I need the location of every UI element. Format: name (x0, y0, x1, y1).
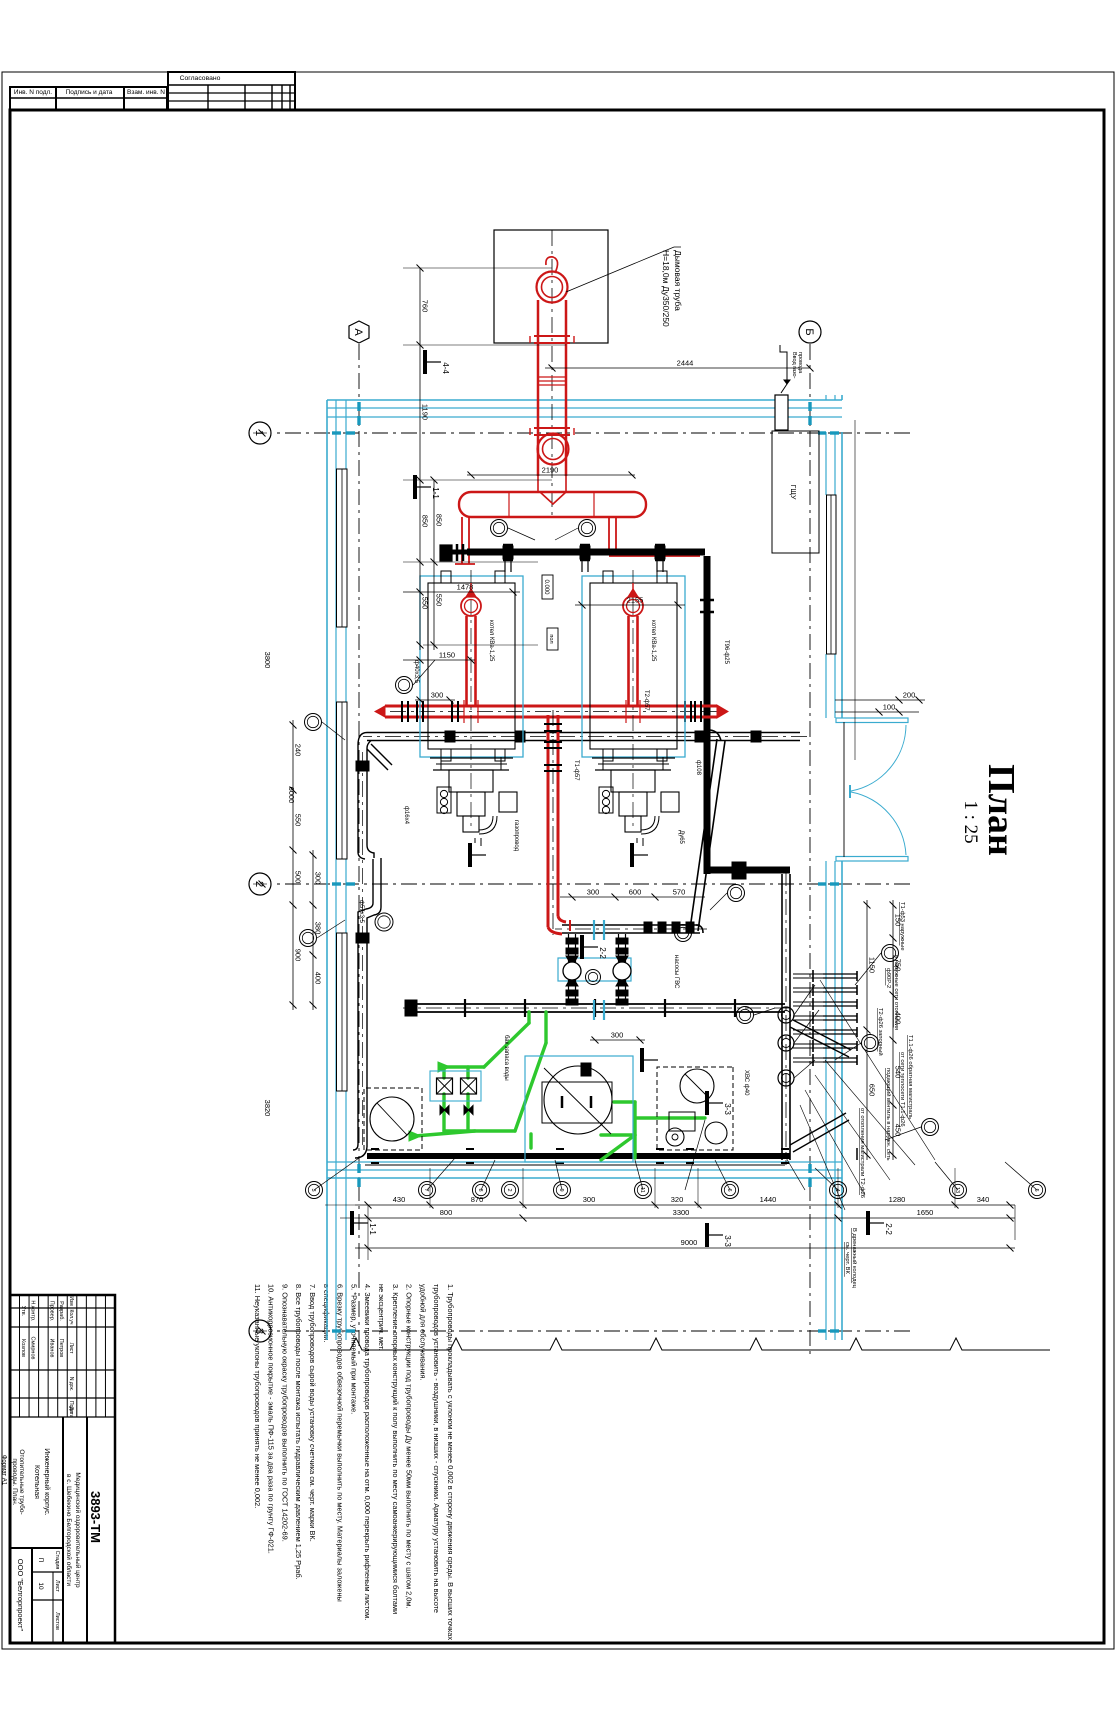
svg-text:2: 2 (506, 1188, 512, 1191)
svg-text:ф16х4: ф16х4 (403, 806, 409, 825)
svg-text:550: 550 (435, 594, 444, 607)
svg-text:Дата: Дата (68, 1406, 74, 1417)
svg-text:300: 300 (611, 1031, 624, 1040)
svg-text:800: 800 (440, 1208, 453, 1217)
svg-text:ООО "Белгорпроект": ООО "Белгорпроект" (16, 1559, 25, 1632)
svg-text:Ввод газо-: Ввод газо- (791, 352, 797, 379)
svg-text:Т1-ф53 наружные: Т1-ф53 наружные (899, 902, 905, 951)
svg-text:ХВС ф40: ХВС ф40 (743, 1070, 749, 1096)
svg-text:ГЩУ: ГЩУ (789, 485, 796, 500)
svg-text:10. Антикоррозионное покрытие: 10. Антикоррозионное покрытие - эмаль ПФ… (267, 1284, 276, 1554)
svg-text:Козлов: Козлов (20, 1339, 26, 1357)
svg-text:540: 540 (894, 1066, 903, 1079)
svg-text:Листов: Листов (54, 1612, 60, 1630)
svg-text:850: 850 (421, 515, 430, 528)
svg-text:Согласовано: Согласовано (180, 75, 221, 82)
svg-text:Петров: Петров (58, 1339, 64, 1357)
svg-text:Т2-ф57: Т2-ф57 (643, 690, 649, 711)
svg-text:N док.: N док. (68, 1377, 74, 1391)
svg-text:H=18,0м Ду350/250: H=18,0м Ду350/250 (661, 250, 671, 327)
svg-text:Инв. N подл.: Инв. N подл. (14, 89, 52, 96)
svg-text:760: 760 (421, 300, 430, 313)
svg-text:400: 400 (314, 972, 323, 985)
svg-text:А: А (352, 328, 364, 336)
svg-text:1280: 1280 (889, 1195, 906, 1204)
svg-text:Т2-ф26 запорный: Т2-ф26 запорный (877, 1008, 884, 1056)
svg-text:850: 850 (435, 514, 444, 527)
svg-text:от отопления магистрали Т2-ф26: от отопления магистрали Т2-ф26 (859, 1108, 865, 1198)
svg-text:870: 870 (471, 1195, 484, 1204)
svg-text:Б: Б (803, 328, 815, 335)
svg-text:газопровод: газопровод (513, 820, 519, 852)
svg-text:100: 100 (883, 703, 896, 712)
svg-text:9000: 9000 (681, 1238, 698, 1247)
svg-text:320: 320 (671, 1195, 684, 1204)
svg-text:подающий вентиль в наружн. сет: подающий вентиль в наружн. сеть (885, 1068, 892, 1161)
svg-text:Кол.уч: Кол.уч (68, 1310, 74, 1325)
svg-text:1-1: 1-1 (368, 1223, 377, 1235)
svg-text:200: 200 (903, 691, 916, 700)
svg-text:котел КВа-1,25: котел КВа-1,25 (650, 620, 656, 662)
svg-text:240: 240 (294, 744, 303, 757)
svg-text:бак запаса воды: бак запаса воды (503, 1035, 509, 1081)
svg-text:2-2: 2-2 (598, 947, 607, 959)
svg-text:150: 150 (894, 914, 903, 927)
svg-text:380: 380 (314, 922, 323, 935)
svg-text:Т96-ф25: Т96-ф25 (723, 640, 729, 665)
svg-text:3. Крепление опорных конструкц: 3. Крепление опорных конструкций к полу … (391, 1284, 400, 1614)
svg-text:удобной для обслуживания.: удобной для обслуживания. (418, 1284, 427, 1381)
svg-text:в с. Шебекино Белгородской обл: в с. Шебекино Белгородской области (65, 1474, 73, 1586)
svg-text:2190: 2190 (542, 466, 559, 475)
svg-text:300: 300 (587, 888, 600, 897)
svg-text:2444: 2444 (677, 359, 694, 368)
svg-text:10: 10 (37, 1582, 44, 1590)
svg-text:Формат А1: Формат А1 (1, 1455, 7, 1486)
svg-text:Инженерный корпус.: Инженерный корпус. (43, 1448, 51, 1516)
svg-text:Утв.: Утв. (20, 1306, 26, 1317)
svg-text:430: 430 (393, 1195, 406, 1204)
svg-text:Лист: Лист (68, 1343, 74, 1355)
svg-text:План: План (980, 764, 1022, 856)
svg-text:3: 3 (310, 1188, 316, 1191)
svg-text:3-3: 3-3 (723, 1235, 732, 1247)
svg-text:1440: 1440 (760, 1195, 777, 1204)
svg-text:400: 400 (894, 1012, 903, 1025)
svg-text:1 : 25: 1 : 25 (960, 800, 981, 843)
svg-text:570: 570 (673, 888, 686, 897)
svg-text:1650: 1650 (917, 1208, 934, 1217)
svg-text:Ду65: Ду65 (678, 830, 684, 845)
svg-text:Н.контр.: Н.контр. (29, 1300, 35, 1322)
svg-text:В дренажный колодец: В дренажный колодец (851, 1228, 858, 1289)
svg-text:9: 9 (558, 1188, 564, 1191)
svg-text:8. Все трубопроводы после монт: 8. Все трубопроводы после монтажа испыта… (294, 1284, 303, 1580)
svg-text:6000: 6000 (287, 787, 296, 804)
svg-text:13: 13 (954, 1187, 960, 1193)
svg-text:ф40х3,5: ф40х3,5 (413, 660, 419, 684)
svg-text:4-4: 4-4 (441, 362, 450, 374)
svg-text:0.000: 0.000 (543, 579, 549, 595)
svg-text:ф90Р-2: ф90Р-2 (885, 968, 891, 988)
svg-text:Смирнов: Смирнов (29, 1337, 35, 1360)
svg-text:1. Трубопроводы прокладывать с: 1. Трубопроводы прокладывать с уклоном н… (446, 1284, 455, 1640)
svg-text:3-3: 3-3 (723, 1103, 732, 1115)
svg-text:Медицинский оздоровительный це: Медицинский оздоровительный центр (74, 1472, 82, 1588)
svg-text:пол: пол (548, 634, 554, 643)
svg-text:провода: провода (797, 352, 803, 374)
svg-text:450: 450 (894, 1124, 903, 1137)
svg-text:7. Ввод трубопроводов сырой во: 7. Ввод трубопроводов сырой воды установ… (308, 1284, 317, 1542)
svg-text:2-2: 2-2 (884, 1223, 893, 1235)
svg-text:2. Опорные конструкции под тру: 2. Опорные конструкции под трубопроводы … (405, 1284, 414, 1609)
svg-text:1478: 1478 (457, 583, 474, 592)
svg-text:4. Змеевики провода трубопрово: 4. Змеевики провода трубопроводов распол… (363, 1284, 372, 1620)
svg-text:3800: 3800 (263, 652, 272, 669)
svg-text:900: 900 (294, 949, 303, 962)
svg-text:1150: 1150 (868, 957, 877, 973)
svg-text:Иванов: Иванов (48, 1339, 54, 1358)
svg-text:Котельная: Котельная (33, 1465, 40, 1499)
svg-text:П: П (37, 1558, 44, 1563)
svg-text:3893-ТМ: 3893-ТМ (88, 1491, 103, 1543)
svg-text:ф57х3,5: ф57х3,5 (358, 900, 364, 924)
svg-text:2155: 2155 (627, 596, 644, 605)
svg-text:500: 500 (294, 871, 303, 884)
svg-text:ф108: ф108 (695, 760, 701, 776)
svg-text:Отопительные трубо-: Отопительные трубо- (18, 1449, 26, 1514)
svg-text:340: 340 (977, 1195, 990, 1204)
svg-text:Лист: Лист (54, 1580, 60, 1592)
svg-text:8: 8 (477, 1188, 483, 1191)
svg-text:Провер.: Провер. (48, 1301, 54, 1322)
svg-text:3300: 3300 (673, 1208, 690, 1217)
svg-text:750: 750 (894, 959, 903, 972)
svg-text:3820: 3820 (263, 1100, 272, 1117)
svg-text:1150: 1150 (439, 651, 455, 660)
svg-text:650: 650 (868, 1084, 877, 1097)
svg-text:1190: 1190 (421, 404, 430, 420)
svg-text:9. Опознавательную окраску тру: 9. Опознавательную окраску трубопроводов… (280, 1284, 289, 1542)
svg-text:насосы ГВС: насосы ГВС (673, 955, 679, 989)
svg-text:300: 300 (583, 1195, 596, 1204)
svg-text:550: 550 (294, 814, 303, 827)
svg-text:Т1-ф57: Т1-ф57 (573, 760, 579, 781)
svg-text:от сети теплосети Т1.1-ф26: от сети теплосети Т1.1-ф26 (899, 1052, 905, 1127)
svg-text:котел КВа-1,25: котел КВа-1,25 (488, 620, 494, 662)
svg-text:не эксцентрич. мет.: не эксцентрич. мет. (377, 1284, 386, 1351)
svg-text:Взам. инв. N: Взам. инв. N (127, 89, 165, 96)
svg-text:11. Неуказанные уклоны трубопр: 11. Неуказанные уклоны трубопроводов при… (253, 1284, 262, 1508)
svg-text:300: 300 (431, 691, 444, 700)
svg-text:см. черт. ВК: см. черт. ВК (844, 1242, 850, 1275)
svg-text:Т1.1-ф26 обратная магистраль: Т1.1-ф26 обратная магистраль (907, 1035, 913, 1119)
svg-text:Подпись и дата: Подпись и дата (66, 89, 113, 96)
svg-text:300: 300 (314, 872, 323, 885)
svg-text:Стадия: Стадия (54, 1551, 60, 1570)
svg-text:600: 600 (629, 888, 642, 897)
svg-text:11: 11 (639, 1187, 645, 1193)
svg-text:Разраб.: Разраб. (58, 1301, 64, 1321)
svg-text:трубопроводов установить - воз: трубопроводов установить - воздушники, в… (432, 1284, 441, 1613)
svg-text:проводы. План.: проводы. План. (11, 1458, 18, 1505)
svg-text:Изм: Изм (68, 1296, 74, 1306)
svg-text:550: 550 (421, 597, 430, 610)
svg-text:Дымовая труба: Дымовая труба (673, 250, 683, 311)
svg-text:6: 6 (726, 1188, 732, 1191)
svg-text:1-1: 1-1 (431, 487, 440, 499)
